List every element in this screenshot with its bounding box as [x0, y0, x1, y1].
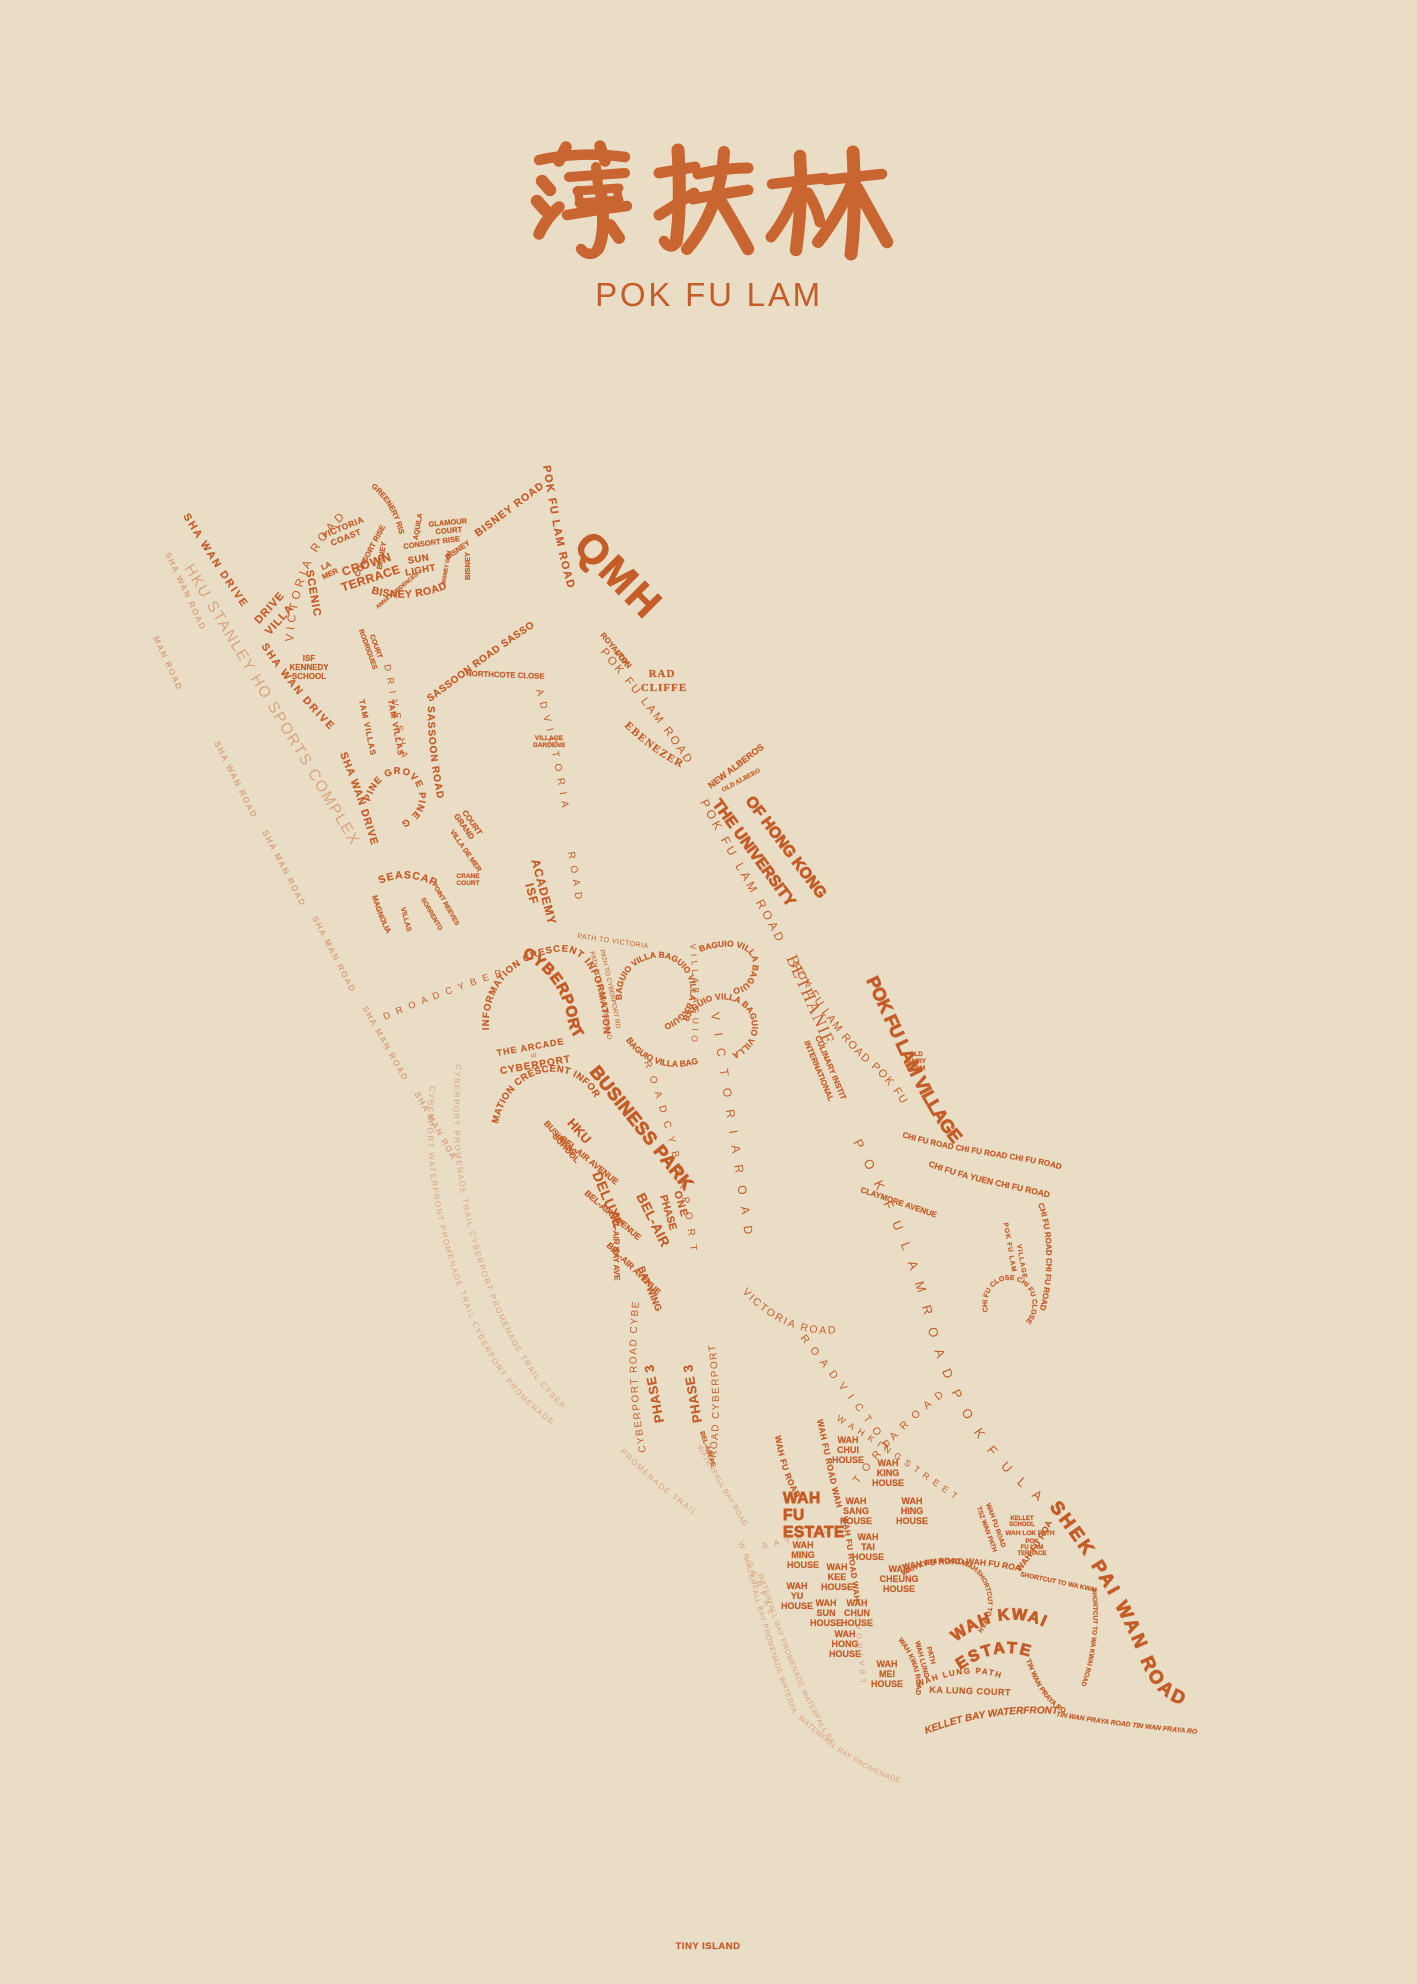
svg-text:VILLAGE: VILLAGE: [535, 735, 564, 742]
svg-text:HOUSE: HOUSE: [821, 1582, 853, 1592]
svg-text:WAH: WAH: [835, 1629, 856, 1639]
svg-text:YU: YU: [791, 1591, 804, 1601]
svg-text:HOUSE: HOUSE: [871, 1679, 903, 1689]
svg-text:WAH: WAH: [838, 1435, 859, 1445]
svg-text:WAH: WAH: [847, 1598, 868, 1608]
svg-text:TERRACE: TERRACE: [1017, 1551, 1046, 1557]
svg-text:WAH: WAH: [816, 1598, 837, 1608]
svg-text:WAH: WAH: [827, 1562, 848, 1572]
svg-text:BISNEY: BISNEY: [463, 552, 472, 580]
svg-text:HOUSE: HOUSE: [787, 1560, 819, 1570]
svg-text:SANG: SANG: [843, 1506, 869, 1516]
svg-text:COURT: COURT: [456, 880, 479, 887]
svg-text:HOUSE: HOUSE: [872, 1478, 904, 1488]
svg-text:WAH: WAH: [878, 1458, 899, 1468]
svg-text:WAH: WAH: [846, 1496, 867, 1506]
svg-text:SUN: SUN: [816, 1608, 835, 1618]
svg-text:TAI: TAI: [861, 1542, 875, 1552]
svg-text:KING: KING: [877, 1468, 900, 1478]
svg-text:WAH: WAH: [793, 1540, 814, 1550]
svg-text:WAH LOK PATH: WAH LOK PATH: [1005, 1530, 1055, 1537]
svg-text:WAH: WAH: [787, 1581, 808, 1591]
svg-text:GARDENS: GARDENS: [533, 742, 566, 749]
svg-text:HOUSE: HOUSE: [896, 1516, 928, 1526]
svg-text:MING: MING: [791, 1550, 815, 1560]
svg-text:CRANE: CRANE: [456, 873, 480, 880]
svg-text:RAD: RAD: [649, 668, 676, 680]
svg-text:HOUSE: HOUSE: [840, 1516, 872, 1526]
svg-text:TINY ISLAND: TINY ISLAND: [676, 1941, 741, 1952]
svg-text:POK FU LAM: POK FU LAM: [595, 276, 823, 313]
svg-text:HOUSE: HOUSE: [832, 1455, 864, 1465]
svg-text:WAH: WAH: [858, 1532, 879, 1542]
svg-text:CHEUNG: CHEUNG: [879, 1574, 918, 1584]
svg-text:CHUI: CHUI: [837, 1445, 859, 1455]
svg-text:SCHOOL: SCHOOL: [292, 672, 326, 681]
svg-text:HING: HING: [901, 1506, 924, 1516]
svg-text:HOUSE: HOUSE: [810, 1618, 842, 1628]
svg-text:HOUSE: HOUSE: [883, 1584, 915, 1594]
svg-text:HOUSE: HOUSE: [781, 1601, 813, 1611]
svg-text:CLIFFE: CLIFFE: [641, 682, 687, 694]
svg-text:KEE: KEE: [828, 1572, 847, 1582]
svg-text:WAH: WAH: [902, 1496, 923, 1506]
svg-text:SCHOOL: SCHOOL: [1009, 1522, 1035, 1528]
svg-text:FU: FU: [783, 1507, 805, 1524]
svg-text:MEI: MEI: [879, 1669, 895, 1679]
svg-text:KENNEDY: KENNEDY: [289, 663, 329, 672]
svg-text:HONG: HONG: [832, 1639, 859, 1649]
svg-text:ISF: ISF: [303, 654, 316, 663]
svg-text:WAH: WAH: [877, 1659, 898, 1669]
svg-text:HOUSE: HOUSE: [852, 1552, 884, 1562]
